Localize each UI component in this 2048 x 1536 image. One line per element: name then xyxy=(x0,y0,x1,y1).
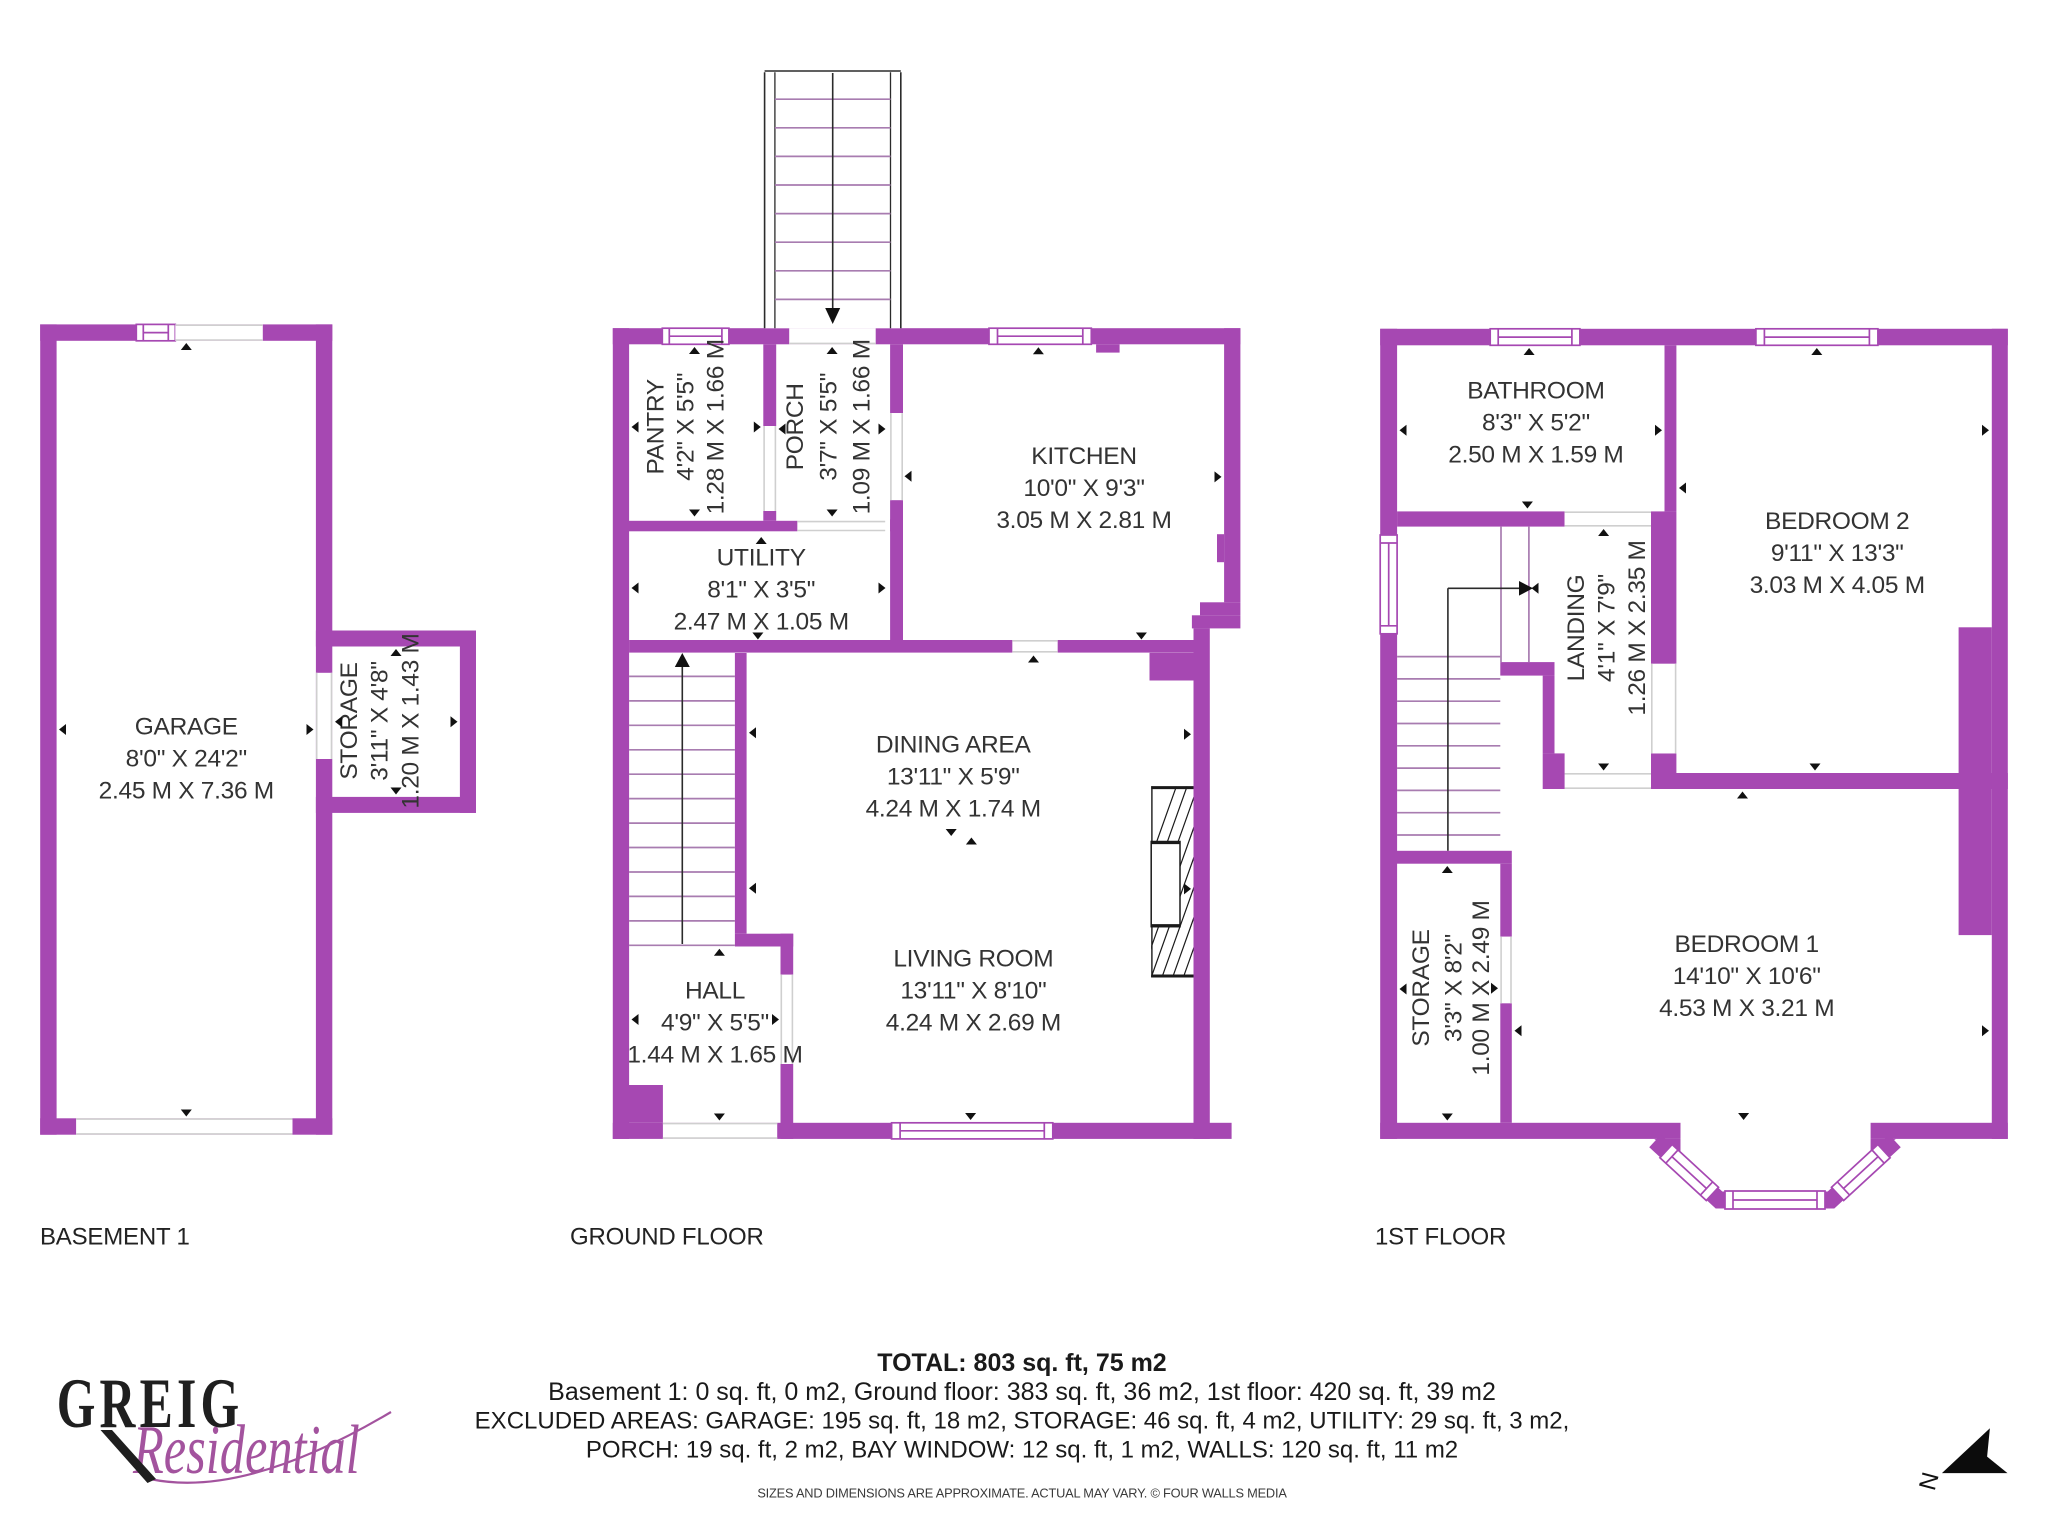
svg-text:PORCH: PORCH xyxy=(782,383,809,470)
svg-text:13'11" X 5'9": 13'11" X 5'9" xyxy=(887,764,1020,791)
svg-text:BASEMENT 1: BASEMENT 1 xyxy=(40,1224,190,1251)
svg-text:1.44 M X 1.65 M: 1.44 M X 1.65 M xyxy=(627,1042,802,1069)
svg-text:STORAGE: STORAGE xyxy=(1408,929,1435,1046)
svg-text:DINING AREA: DINING AREA xyxy=(876,732,1032,759)
svg-text:1.09 M X 1.66 M: 1.09 M X 1.66 M xyxy=(849,339,876,514)
svg-text:PORCH: 19 sq. ft, 2 m2, BAY WI: PORCH: 19 sq. ft, 2 m2, BAY WINDOW: 12 s… xyxy=(586,1437,1458,1464)
svg-text:UTILITY: UTILITY xyxy=(717,544,806,571)
svg-text:KITCHEN: KITCHEN xyxy=(1031,443,1136,470)
svg-text:Residential: Residential xyxy=(132,1412,360,1489)
svg-text:BEDROOM 2: BEDROOM 2 xyxy=(1765,508,1909,535)
svg-text:4'1" X 7'9": 4'1" X 7'9" xyxy=(1594,574,1621,682)
svg-text:3.05 M X 2.81 M: 3.05 M X 2.81 M xyxy=(996,507,1171,534)
svg-text:LANDING: LANDING xyxy=(1563,575,1590,682)
svg-text:3'3" X 8'2": 3'3" X 8'2" xyxy=(1440,934,1467,1042)
svg-text:1.28 M X 1.66 M: 1.28 M X 1.66 M xyxy=(703,339,730,514)
svg-text:8'1" X 3'5": 8'1" X 3'5" xyxy=(707,576,815,603)
svg-text:BATHROOM: BATHROOM xyxy=(1467,378,1604,405)
svg-text:4'9" X 5'5": 4'9" X 5'5" xyxy=(661,1010,769,1037)
svg-text:2.50 M X 1.59 M: 2.50 M X 1.59 M xyxy=(1448,442,1623,469)
svg-text:14'10" X 10'6": 14'10" X 10'6" xyxy=(1673,963,1821,990)
svg-text:GROUND FLOOR: GROUND FLOOR xyxy=(570,1224,764,1251)
svg-text:3.03 M X 4.05 M: 3.03 M X 4.05 M xyxy=(1750,572,1925,599)
svg-text:9'11" X 13'3": 9'11" X 13'3" xyxy=(1771,540,1904,567)
svg-text:SIZES AND DIMENSIONS ARE APPRO: SIZES AND DIMENSIONS ARE APPROXIMATE. AC… xyxy=(757,1486,1287,1501)
svg-text:GARAGE: GARAGE xyxy=(135,714,238,741)
svg-text:Basement 1: 0 sq. ft, 0 m2, Gr: Basement 1: 0 sq. ft, 0 m2, Ground floor… xyxy=(548,1378,1496,1406)
svg-text:1.26 M X 2.35 M: 1.26 M X 2.35 M xyxy=(1624,540,1651,715)
svg-text:10'0" X 9'3": 10'0" X 9'3" xyxy=(1023,475,1144,502)
svg-text:1.20 M X 1.43 M: 1.20 M X 1.43 M xyxy=(398,633,425,808)
svg-text:3'7" X 5'5": 3'7" X 5'5" xyxy=(815,373,842,481)
svg-text:4.53 M X 3.21 M: 4.53 M X 3.21 M xyxy=(1659,995,1834,1022)
svg-text:4'2" X 5'5": 4'2" X 5'5" xyxy=(673,373,700,481)
svg-text:8'0" X 24'2": 8'0" X 24'2" xyxy=(126,746,247,773)
svg-text:EXCLUDED AREAS: GARAGE: 195 sq: EXCLUDED AREAS: GARAGE: 195 sq. ft, 18 m… xyxy=(475,1408,1570,1435)
svg-text:13'11" X 8'10": 13'11" X 8'10" xyxy=(900,978,1046,1005)
svg-text:2.45 M X 7.36 M: 2.45 M X 7.36 M xyxy=(99,778,274,805)
svg-text:2.47 M X 1.05 M: 2.47 M X 1.05 M xyxy=(674,608,849,635)
svg-text:LIVING ROOM: LIVING ROOM xyxy=(893,946,1053,973)
svg-text:8'3" X 5'2": 8'3" X 5'2" xyxy=(1482,410,1590,437)
svg-text:PANTRY: PANTRY xyxy=(642,379,669,474)
svg-text:4.24 M X 2.69 M: 4.24 M X 2.69 M xyxy=(886,1010,1061,1037)
svg-text:HALL: HALL xyxy=(685,978,745,1005)
svg-text:1ST FLOOR: 1ST FLOOR xyxy=(1375,1224,1506,1251)
svg-text:BEDROOM 1: BEDROOM 1 xyxy=(1675,931,1819,958)
svg-text:TOTAL: 803 sq. ft, 75 m2: TOTAL: 803 sq. ft, 75 m2 xyxy=(877,1349,1166,1377)
svg-text:4.24 M X 1.74 M: 4.24 M X 1.74 M xyxy=(866,796,1041,823)
svg-text:3'11" X 4'8": 3'11" X 4'8" xyxy=(367,661,394,780)
